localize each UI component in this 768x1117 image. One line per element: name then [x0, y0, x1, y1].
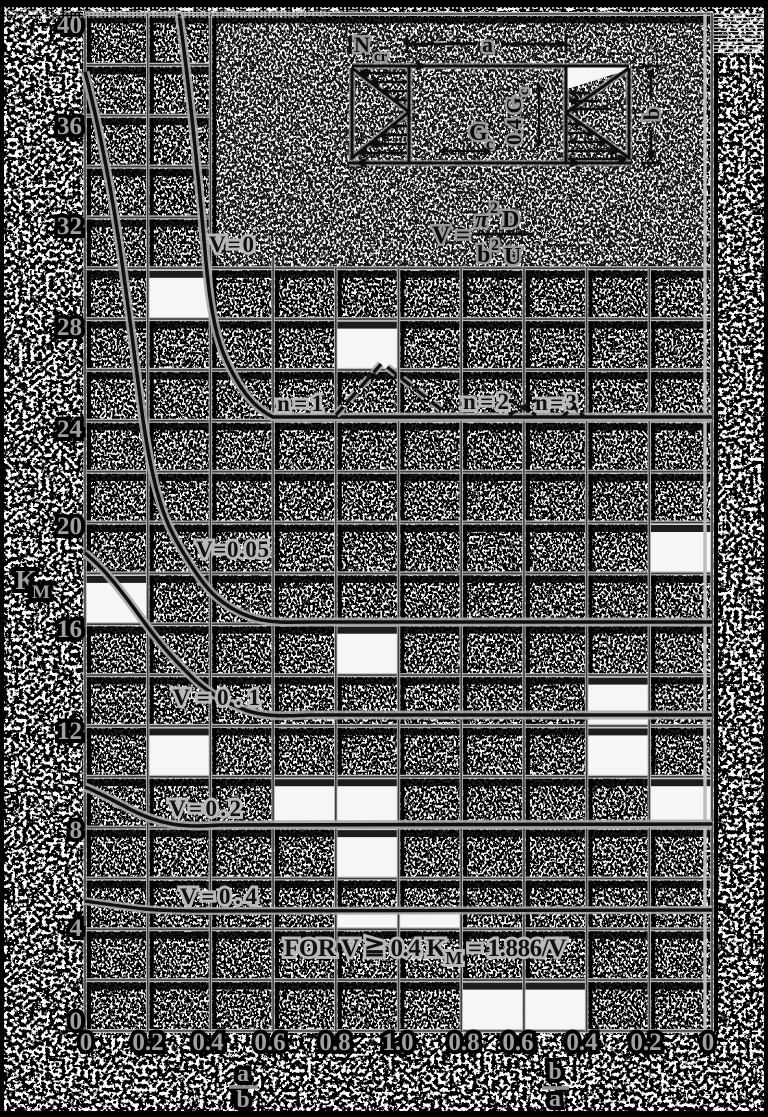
svg-text:0.2: 0.2 — [132, 1029, 163, 1056]
svg-text:M: M — [32, 582, 50, 603]
svg-text:b: b — [236, 1087, 249, 1113]
svg-text:0.8: 0.8 — [319, 1029, 350, 1056]
svg-text:0.6: 0.6 — [254, 1029, 285, 1056]
svg-text:8: 8 — [70, 817, 83, 844]
svg-text:n=2: n=2 — [463, 389, 509, 414]
svg-text:c: c — [517, 89, 532, 95]
svg-text:V=0.4: V=0.4 — [180, 884, 258, 909]
svg-text:V=0.2: V=0.2 — [169, 796, 241, 821]
svg-text:b: b — [639, 108, 664, 120]
svg-text:n=1: n=1 — [277, 391, 323, 416]
svg-text:0.4: 0.4 — [192, 1029, 224, 1056]
svg-text:16: 16 — [57, 616, 82, 643]
svg-text:0.8: 0.8 — [448, 1029, 479, 1056]
svg-text:0: 0 — [702, 1029, 715, 1056]
svg-text:0.4: 0.4 — [566, 1029, 598, 1056]
svg-text:0.2: 0.2 — [630, 1029, 661, 1056]
svg-text:24: 24 — [57, 416, 83, 443]
svg-text:V=0: V=0 — [209, 232, 254, 257]
svg-text:12: 12 — [57, 718, 82, 745]
svg-text:a: a — [482, 32, 493, 57]
svg-text:2: 2 — [491, 237, 499, 254]
svg-text:n=3: n=3 — [535, 390, 577, 415]
svg-text:U: U — [504, 244, 521, 270]
svg-text:0.4 G: 0.4 G — [502, 97, 526, 145]
svg-text:V =: V = — [432, 222, 470, 249]
svg-text:π: π — [475, 207, 489, 233]
svg-text:0: 0 — [80, 1029, 93, 1056]
svg-text:b: b — [477, 242, 490, 268]
svg-text:a: a — [237, 1061, 249, 1087]
svg-text:40: 40 — [57, 12, 82, 39]
svg-text:V=0.05: V=0.05 — [196, 537, 269, 562]
svg-text:0.6: 0.6 — [502, 1029, 533, 1056]
svg-text:1.0: 1.0 — [382, 1029, 413, 1056]
svg-text:20: 20 — [57, 513, 82, 540]
svg-text:D: D — [502, 207, 519, 233]
svg-text:36: 36 — [57, 113, 82, 140]
svg-text:28: 28 — [57, 314, 82, 341]
svg-text:N: N — [354, 32, 370, 57]
svg-text:32: 32 — [57, 213, 82, 240]
svg-text:4: 4 — [70, 915, 83, 942]
svg-text:b: b — [548, 1059, 561, 1085]
svg-text:2: 2 — [490, 200, 498, 217]
svg-text:cr: cr — [374, 49, 388, 65]
svg-text:a: a — [549, 1086, 561, 1112]
